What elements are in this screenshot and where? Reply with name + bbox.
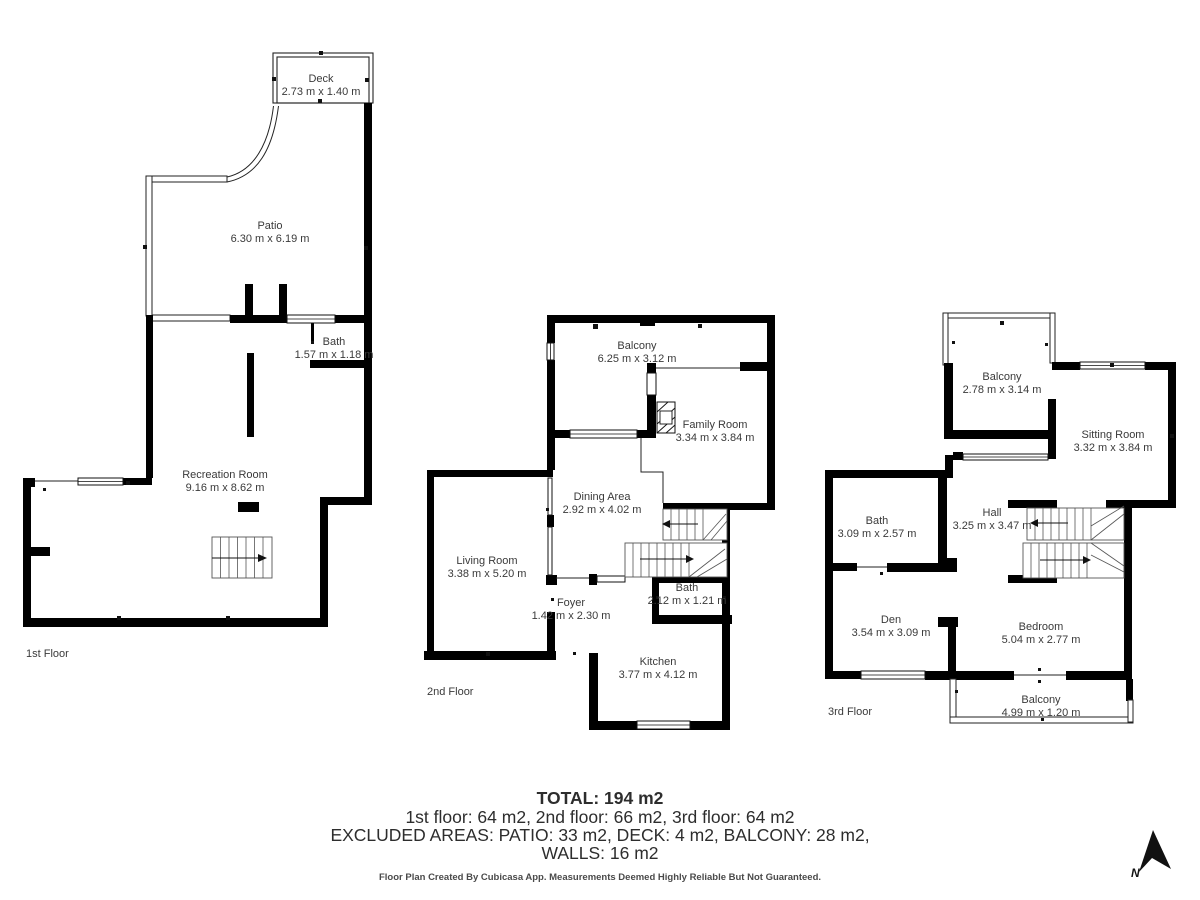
summary-floors: 1st floor: 64 m2, 2nd floor: 66 m2, 3rd … [0,808,1200,826]
third-floor-stairs [1023,506,1124,578]
room-label-bath-1f: Bath 1.57 m x 1.18 m [295,336,374,362]
balcony-outline [943,313,1055,365]
room-label-den: Den 3.54 m x 3.09 m [852,614,931,640]
patio-outline [146,176,230,321]
second-floor-stairs [625,509,727,577]
room-label-patio: Patio 6.30 m x 6.19 m [231,220,310,246]
floor-label-1st: 1st Floor [26,648,69,660]
room-label-hall: Hall 3.25 m x 3.47 m [953,507,1032,533]
room-label-deck: Deck 2.73 m x 1.40 m [282,73,361,99]
room-label-foyer: Foyer 1.42 m x 2.30 m [532,597,611,623]
floor-plan-canvas: Deck 2.73 m x 1.40 m Patio 6.30 m x 6.19… [0,0,1200,900]
room-label-balcony-3f-top: Balcony 2.78 m x 3.14 m [963,371,1042,397]
room-label-dining-area: Dining Area 2.92 m x 4.02 m [563,491,642,517]
fireplace-icon [657,402,675,433]
floor-label-2nd: 2nd Floor [427,686,473,698]
room-label-family-room: Family Room 3.34 m x 3.84 m [676,419,755,445]
room-label-bath-2f: Bath 2.12 m x 1.21 m [648,582,727,608]
room-label-balcony-2f: Balcony 6.25 m x 3.12 m [598,340,677,366]
room-label-bath-3f: Bath 3.09 m x 2.57 m [838,515,917,541]
island [238,502,259,512]
room-label-kitchen: Kitchen 3.77 m x 4.12 m [619,656,698,682]
room-label-sitting-room: Sitting Room 3.32 m x 3.84 m [1074,429,1153,455]
second-floor-walls [424,315,775,730]
room-label-recreation-room: Recreation Room 9.16 m x 8.62 m [182,469,268,495]
wall [364,103,372,504]
footer-credit: Floor Plan Created By Cubicasa App. Meas… [0,872,1200,883]
floor-label-3rd: 3rd Floor [828,706,872,718]
room-label-balcony-3f-bottom: Balcony 4.99 m x 1.20 m [1002,694,1081,720]
summary-excluded: EXCLUDED AREAS: PATIO: 33 m2, DECK: 4 m2… [0,826,1200,844]
summary-total: TOTAL: 194 m2 [0,789,1200,807]
floor-plan-drawing [0,0,1200,900]
plan-ticks [43,245,368,620]
first-floor-stairs [212,537,272,578]
north-label: N [1131,866,1140,880]
summary-walls: WALLS: 16 m2 [0,844,1200,862]
room-label-bedroom: Bedroom 5.04 m x 2.77 m [1002,621,1081,647]
room-label-living-room: Living Room 3.38 m x 5.20 m [448,555,527,581]
